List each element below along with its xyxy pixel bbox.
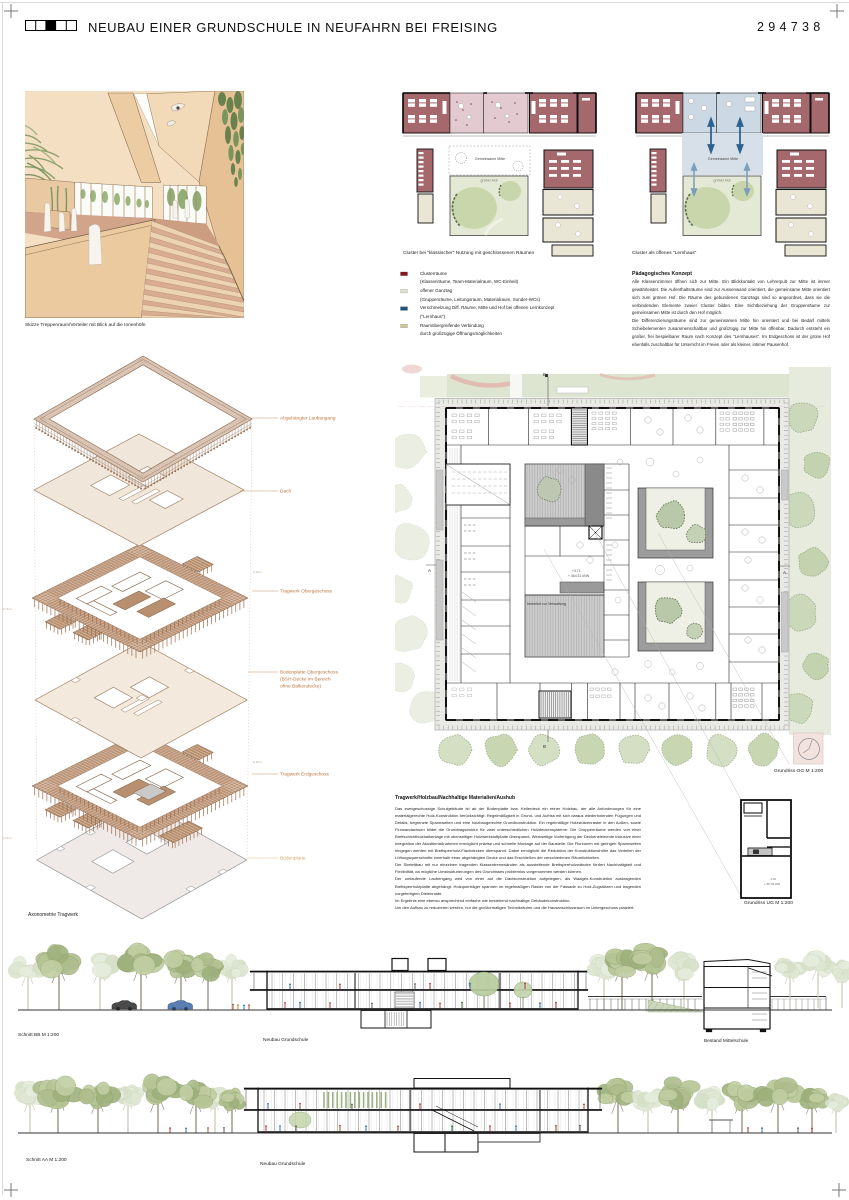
svg-text:Bodenplatte Obergeschoss: Bodenplatte Obergeschoss <box>280 670 338 676</box>
svg-text:-3.00: -3.00 <box>770 877 776 881</box>
svg-text:Tragwerk Erdgeschoss: Tragwerk Erdgeschoss <box>280 772 329 778</box>
svg-text:A: A <box>783 570 786 575</box>
svg-text:Innenhof zur Verwaltung: Innenhof zur Verwaltung <box>527 602 566 606</box>
svg-text:Dach: Dach <box>280 489 292 495</box>
svg-text:+ 457.80 üNN: + 457.80 üNN <box>764 882 780 886</box>
svg-text:+3.71: +3.71 <box>572 569 581 573</box>
svg-text:(BSH-Decke im Bereich: (BSH-Decke im Bereich <box>280 677 331 683</box>
svg-text:grüner Hof: grüner Hof <box>714 179 731 183</box>
svg-text:Gemeinsame Mitte: Gemeinsame Mitte <box>708 157 738 161</box>
svg-text:Abgehängter Laubengang: Abgehängter Laubengang <box>280 416 336 422</box>
svg-text:B: B <box>543 744 546 749</box>
svg-text:Bodenplatte: Bodenplatte <box>280 856 306 862</box>
svg-text:Gemeinsame Mitte: Gemeinsame Mitte <box>475 157 505 161</box>
svg-text:grüner Hof: grüner Hof <box>481 179 498 183</box>
svg-text:Tragwerk Obergeschoss: Tragwerk Obergeschoss <box>280 589 333 595</box>
svg-text:A: A <box>428 568 431 573</box>
svg-text:+ 464.51 üNN: + 464.51 üNN <box>568 574 590 578</box>
svg-text:ohne Balkendecke): ohne Balkendecke) <box>280 684 321 690</box>
